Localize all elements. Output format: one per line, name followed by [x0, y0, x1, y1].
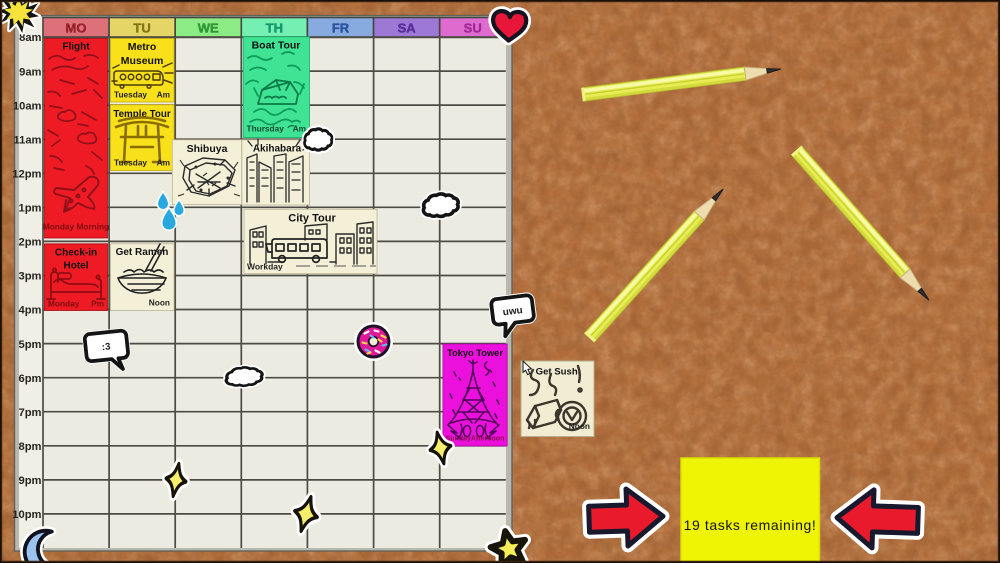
svg-text:1pm: 1pm	[18, 203, 41, 215]
svg-text:Tokyo Tower: Tokyo Tower	[447, 348, 503, 358]
svg-text:SU: SU	[464, 20, 482, 35]
svg-text:Workday: Workday	[247, 262, 283, 272]
svg-text:Akihabara: Akihabara	[253, 144, 302, 155]
svg-text:SA: SA	[398, 20, 417, 35]
svg-text:10am: 10am	[13, 100, 42, 112]
svg-text:2pm: 2pm	[18, 237, 41, 249]
svg-text::3: :3	[101, 341, 111, 353]
svg-text:Am: Am	[157, 90, 170, 100]
svg-text:Monday Morning: Monday Morning	[43, 222, 109, 232]
svg-text:City Tour: City Tour	[288, 213, 336, 225]
svg-text:Flight: Flight	[62, 42, 90, 53]
svg-text:Am: Am	[293, 124, 306, 134]
svg-text:Monday: Monday	[48, 299, 80, 309]
svg-text:TH: TH	[266, 20, 283, 35]
svg-text:Thursday: Thursday	[247, 124, 285, 134]
svg-text:Noon: Noon	[569, 421, 590, 431]
svg-text:WE: WE	[198, 20, 219, 35]
svg-text:9am: 9am	[19, 66, 41, 78]
svg-text:Am: Am	[157, 158, 170, 168]
svg-text:MO: MO	[66, 20, 87, 35]
svg-text:Tuesday: Tuesday	[114, 90, 147, 100]
svg-text:Museum: Museum	[121, 55, 164, 67]
svg-text:Tuesday: Tuesday	[114, 158, 147, 168]
svg-text:4pm: 4pm	[18, 305, 41, 317]
svg-text:Metro: Metro	[128, 41, 157, 53]
svg-text:12pm: 12pm	[12, 169, 41, 181]
svg-text:10pm: 10pm	[12, 509, 41, 521]
svg-text:FR: FR	[332, 20, 350, 35]
svg-text:Noon: Noon	[149, 298, 170, 308]
svg-text:19 tasks remaining!: 19 tasks remaining!	[684, 517, 817, 533]
svg-text:11am: 11am	[14, 134, 42, 146]
svg-text:3pm: 3pm	[18, 271, 41, 283]
svg-text:Hotel: Hotel	[64, 261, 89, 272]
svg-text:5pm: 5pm	[18, 339, 41, 351]
svg-text:TU: TU	[133, 20, 150, 35]
svg-text:8pm: 8pm	[18, 441, 41, 453]
svg-text:SundayAfternoon: SundayAfternoon	[446, 436, 505, 443]
svg-text:6pm: 6pm	[18, 373, 41, 385]
svg-text:9pm: 9pm	[18, 475, 41, 487]
svg-text:Shibuya: Shibuya	[187, 143, 228, 155]
svg-text:Boat Tour: Boat Tour	[252, 40, 301, 52]
svg-text:Get Sushi: Get Sushi	[536, 367, 581, 378]
svg-text:Check-in: Check-in	[55, 248, 97, 259]
svg-text:7pm: 7pm	[18, 407, 41, 419]
svg-text:Pm: Pm	[91, 299, 104, 309]
